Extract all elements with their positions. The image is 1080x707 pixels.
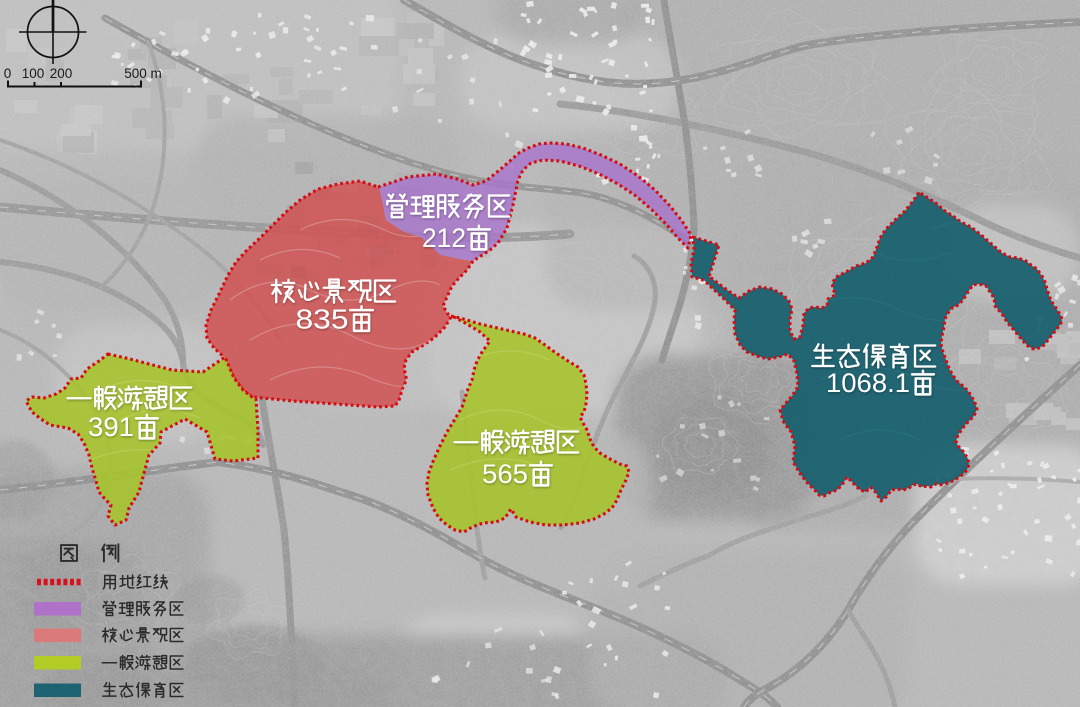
svg-text:500 m: 500 m	[124, 66, 162, 81]
svg-text:212: 212	[422, 223, 466, 253]
svg-text:100: 100	[22, 66, 45, 81]
svg-text:0: 0	[4, 66, 12, 81]
svg-text:200: 200	[50, 66, 73, 81]
svg-text:1068.1: 1068.1	[826, 368, 910, 398]
svg-text:565: 565	[482, 459, 528, 489]
svg-text:835: 835	[296, 304, 349, 335]
svg-text:391: 391	[88, 412, 134, 442]
